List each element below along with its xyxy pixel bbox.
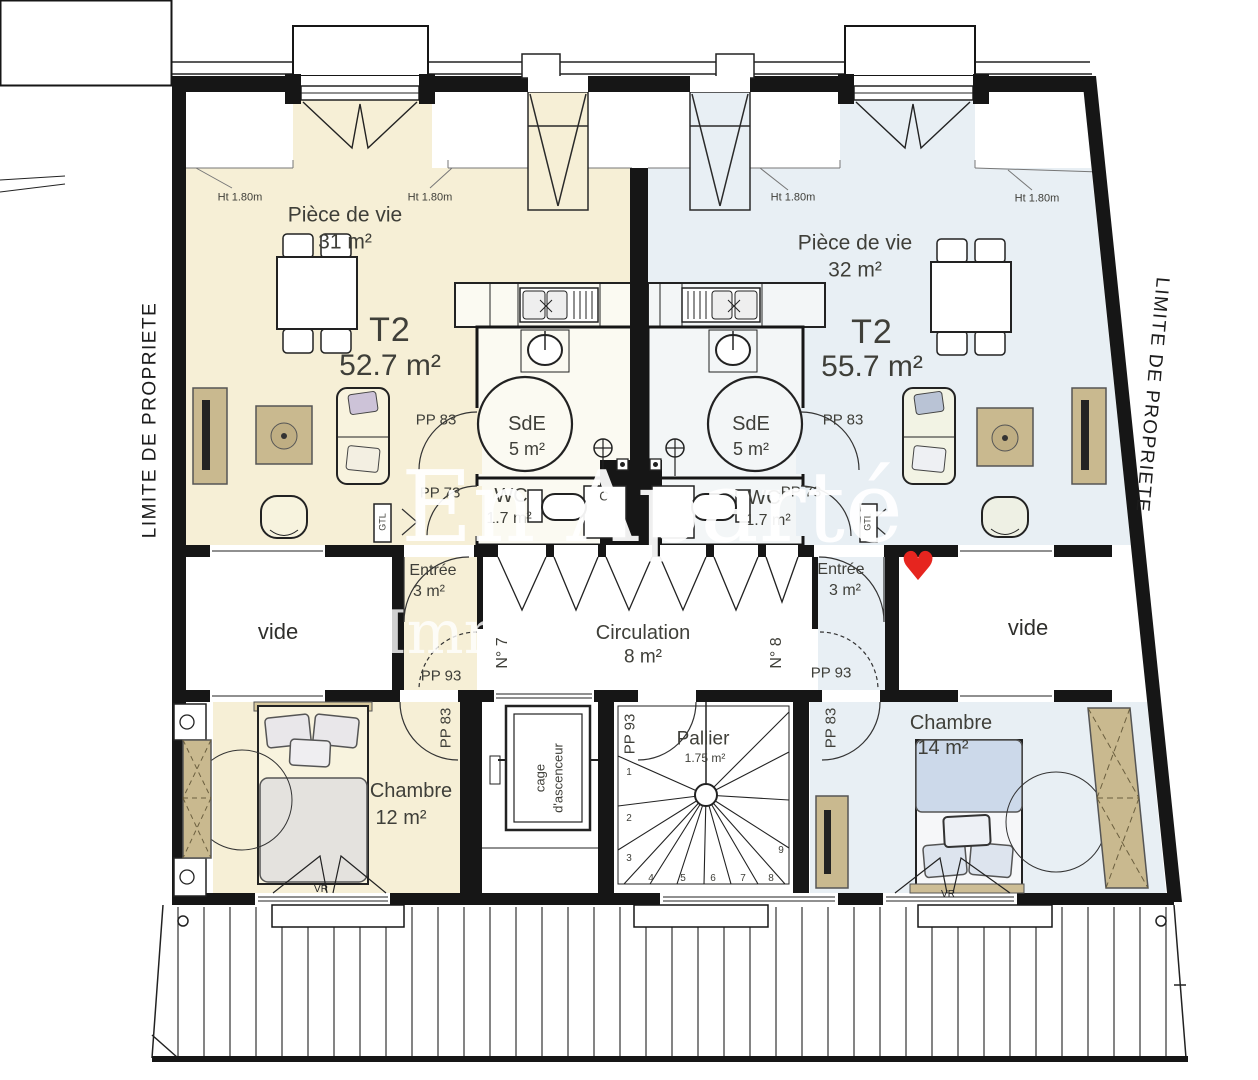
watermark-line1: En Aparté: [401, 451, 903, 565]
elevator-label-1: cage: [534, 764, 547, 792]
unit-number-right: N° 8: [769, 637, 785, 668]
step-number: 8: [768, 874, 774, 884]
dormer-left: [293, 26, 428, 76]
step-number: 4: [648, 874, 654, 884]
property-limit-left: LIMITE DE PROPRIETE: [141, 302, 160, 538]
room-label-entree-left: Entrée: [409, 563, 456, 579]
door-label: PP 93: [421, 669, 462, 684]
gtl-label: GTL: [379, 513, 388, 531]
door-label: PP 83: [439, 708, 454, 749]
room-label-living-right: Pièce de vie: [798, 233, 912, 254]
room-label-pallier: Pallier: [677, 730, 730, 749]
room-area-pallier: 1.75 m²: [685, 752, 726, 764]
door-label: PP 93: [623, 714, 638, 755]
step-number: 1: [626, 768, 632, 778]
step-number: 6: [710, 874, 716, 884]
room-label-sde-left: SdE: [508, 414, 546, 434]
room-area-entree-right: 3 m²: [829, 583, 861, 599]
step-number: 7: [740, 874, 746, 884]
neighbor-building: [1, 1, 172, 86]
height-note: Ht 1.80m: [218, 193, 263, 204]
step-number: 5: [680, 874, 686, 884]
window-label: VR: [314, 885, 328, 895]
room-area-chambre-right: 14 m²: [917, 738, 968, 758]
void-label-left: vide: [258, 621, 298, 643]
room-area-circulation: 8 m²: [624, 648, 662, 667]
wardrobe-left: [183, 740, 211, 858]
apartment-area-right: 55.7 m²: [821, 352, 923, 382]
room-area-entree-left: 3 m²: [413, 584, 445, 600]
dining-table-right: [931, 262, 1011, 332]
apartment-type-left: T2: [369, 313, 411, 347]
window-label: VR: [941, 890, 955, 900]
room-area-living-left: 31 m²: [318, 232, 372, 253]
room-label-sde-right: SdE: [732, 414, 770, 434]
apartment-type-right: T2: [851, 315, 893, 349]
floor-plan: Ht 1.80m Ht 1.80m Pièce de vie 31 m² T2 …: [0, 0, 1258, 1080]
step-number: 2: [626, 814, 632, 824]
dining-table-left: [277, 257, 357, 329]
unit-number-left: N° 7: [495, 637, 511, 668]
dormer-right: [845, 26, 975, 76]
room-area-chambre-left: 12 m²: [375, 808, 426, 828]
apartment-area-left: 52.7 m²: [339, 351, 441, 381]
roof-hatch: [152, 905, 1188, 1062]
height-note: Ht 1.80m: [771, 193, 816, 204]
door-label: PP 93: [811, 666, 852, 681]
step-number: 9: [778, 846, 784, 856]
door-label: PP 83: [824, 708, 839, 749]
room-area-living-right: 32 m²: [828, 260, 882, 281]
height-note: Ht 1.80m: [1015, 194, 1060, 205]
heart-icon: ♥: [900, 544, 936, 590]
door-label: PP 83: [416, 413, 457, 428]
void-label-right: vide: [1008, 617, 1048, 639]
elevator-label-2: d'ascenceur: [552, 743, 565, 813]
room-label-living-left: Pièce de vie: [288, 205, 402, 226]
room-label-circulation: Circulation: [596, 623, 690, 643]
room-label-chambre-left: Chambre: [370, 781, 452, 801]
step-number: 3: [626, 854, 632, 864]
height-note: Ht 1.80m: [408, 193, 453, 204]
room-label-chambre-right: Chambre: [910, 713, 992, 733]
door-label: PP 83: [823, 413, 864, 428]
